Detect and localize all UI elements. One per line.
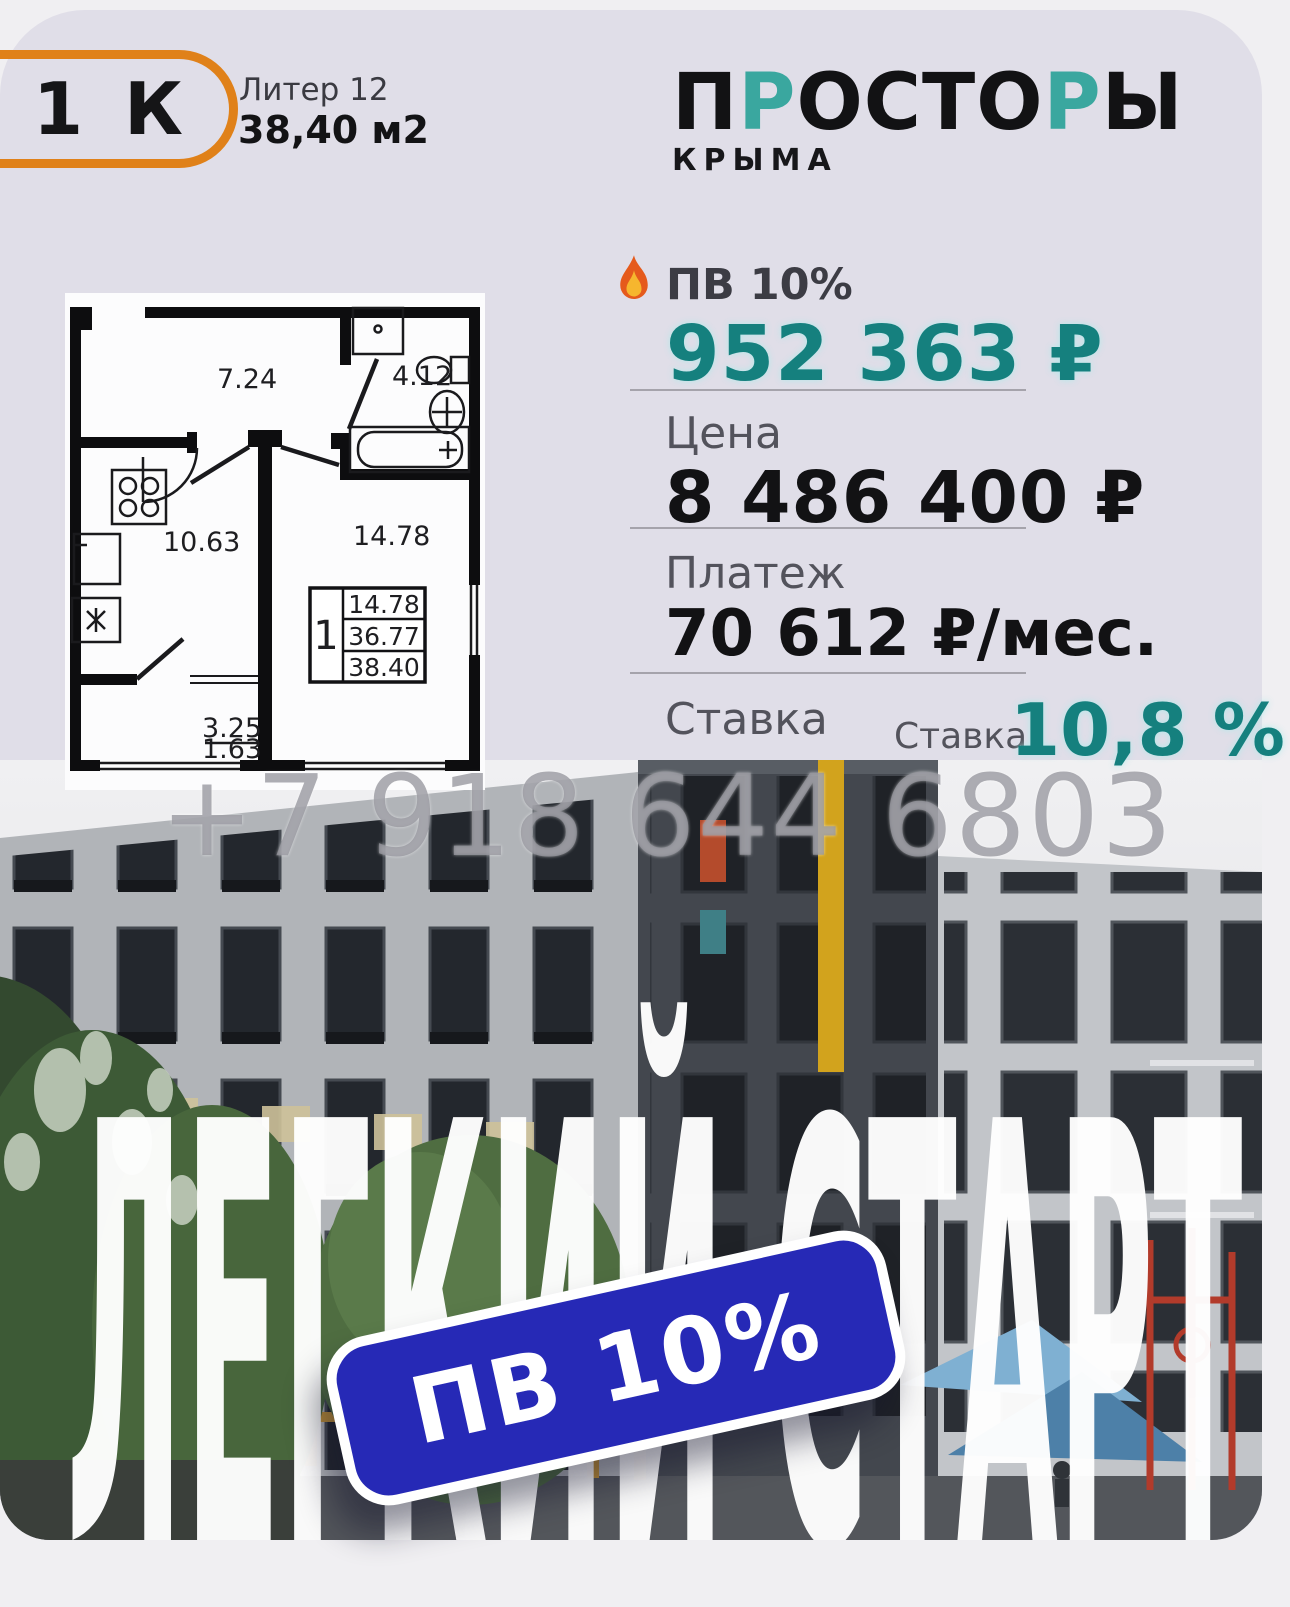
table-living: 14.78 [348,590,420,619]
payment-value: 70 612 ₽/мес. [665,597,1158,671]
liter-label: Литер 12 [239,72,389,108]
downpayment-value: 952 363 ₽ [666,310,1104,399]
price-label: Цена [665,408,782,459]
table-total: 38.40 [348,653,420,682]
divider [630,672,1026,674]
living-area: 14.78 [353,521,430,552]
fire-icon [614,254,654,304]
downpayment-label: ПВ 10% [666,260,853,310]
floor-plan: 1 14.78 36.77 38.40 7.24 4.12 10.63 14.7… [65,293,485,790]
table-wo-balcony: 36.77 [348,622,420,651]
rooms-badge: 1 К [0,50,238,168]
rate-label-small: Ставка [894,716,1027,757]
logo-letter: Ы [1102,58,1184,148]
area-label: 38,40 м2 [238,108,429,152]
phone-watermark: +7 918 644 6803 [160,752,1290,882]
logo-letter: П [672,58,738,148]
bath-area: 4.12 [392,361,452,392]
area-table: 1 14.78 36.77 38.40 [310,588,425,682]
logo-letter-teal: Р [738,58,796,148]
real-estate-flyer: { "colors": { "card_bg": "#e0dee8", "out… [0,0,1290,1607]
logo-word: ПРОСТОРЫ [672,64,1184,142]
table-rooms: 1 [313,613,338,659]
developer-logo: ПРОСТОРЫ КРЫМА [672,64,1184,176]
payment-label: Платеж [665,548,846,599]
divider [630,527,1026,529]
logo-letters: ОСТО [796,58,1043,148]
logo-letter-teal: Р [1044,58,1102,148]
hall-area: 7.24 [217,364,277,395]
divider [630,389,1026,391]
kitchen-area: 10.63 [163,527,240,558]
logo-subtitle: КРЫМА [672,146,1184,176]
rooms-badge-label: 1 К [33,67,191,151]
rate-label: Ставка [665,694,828,745]
